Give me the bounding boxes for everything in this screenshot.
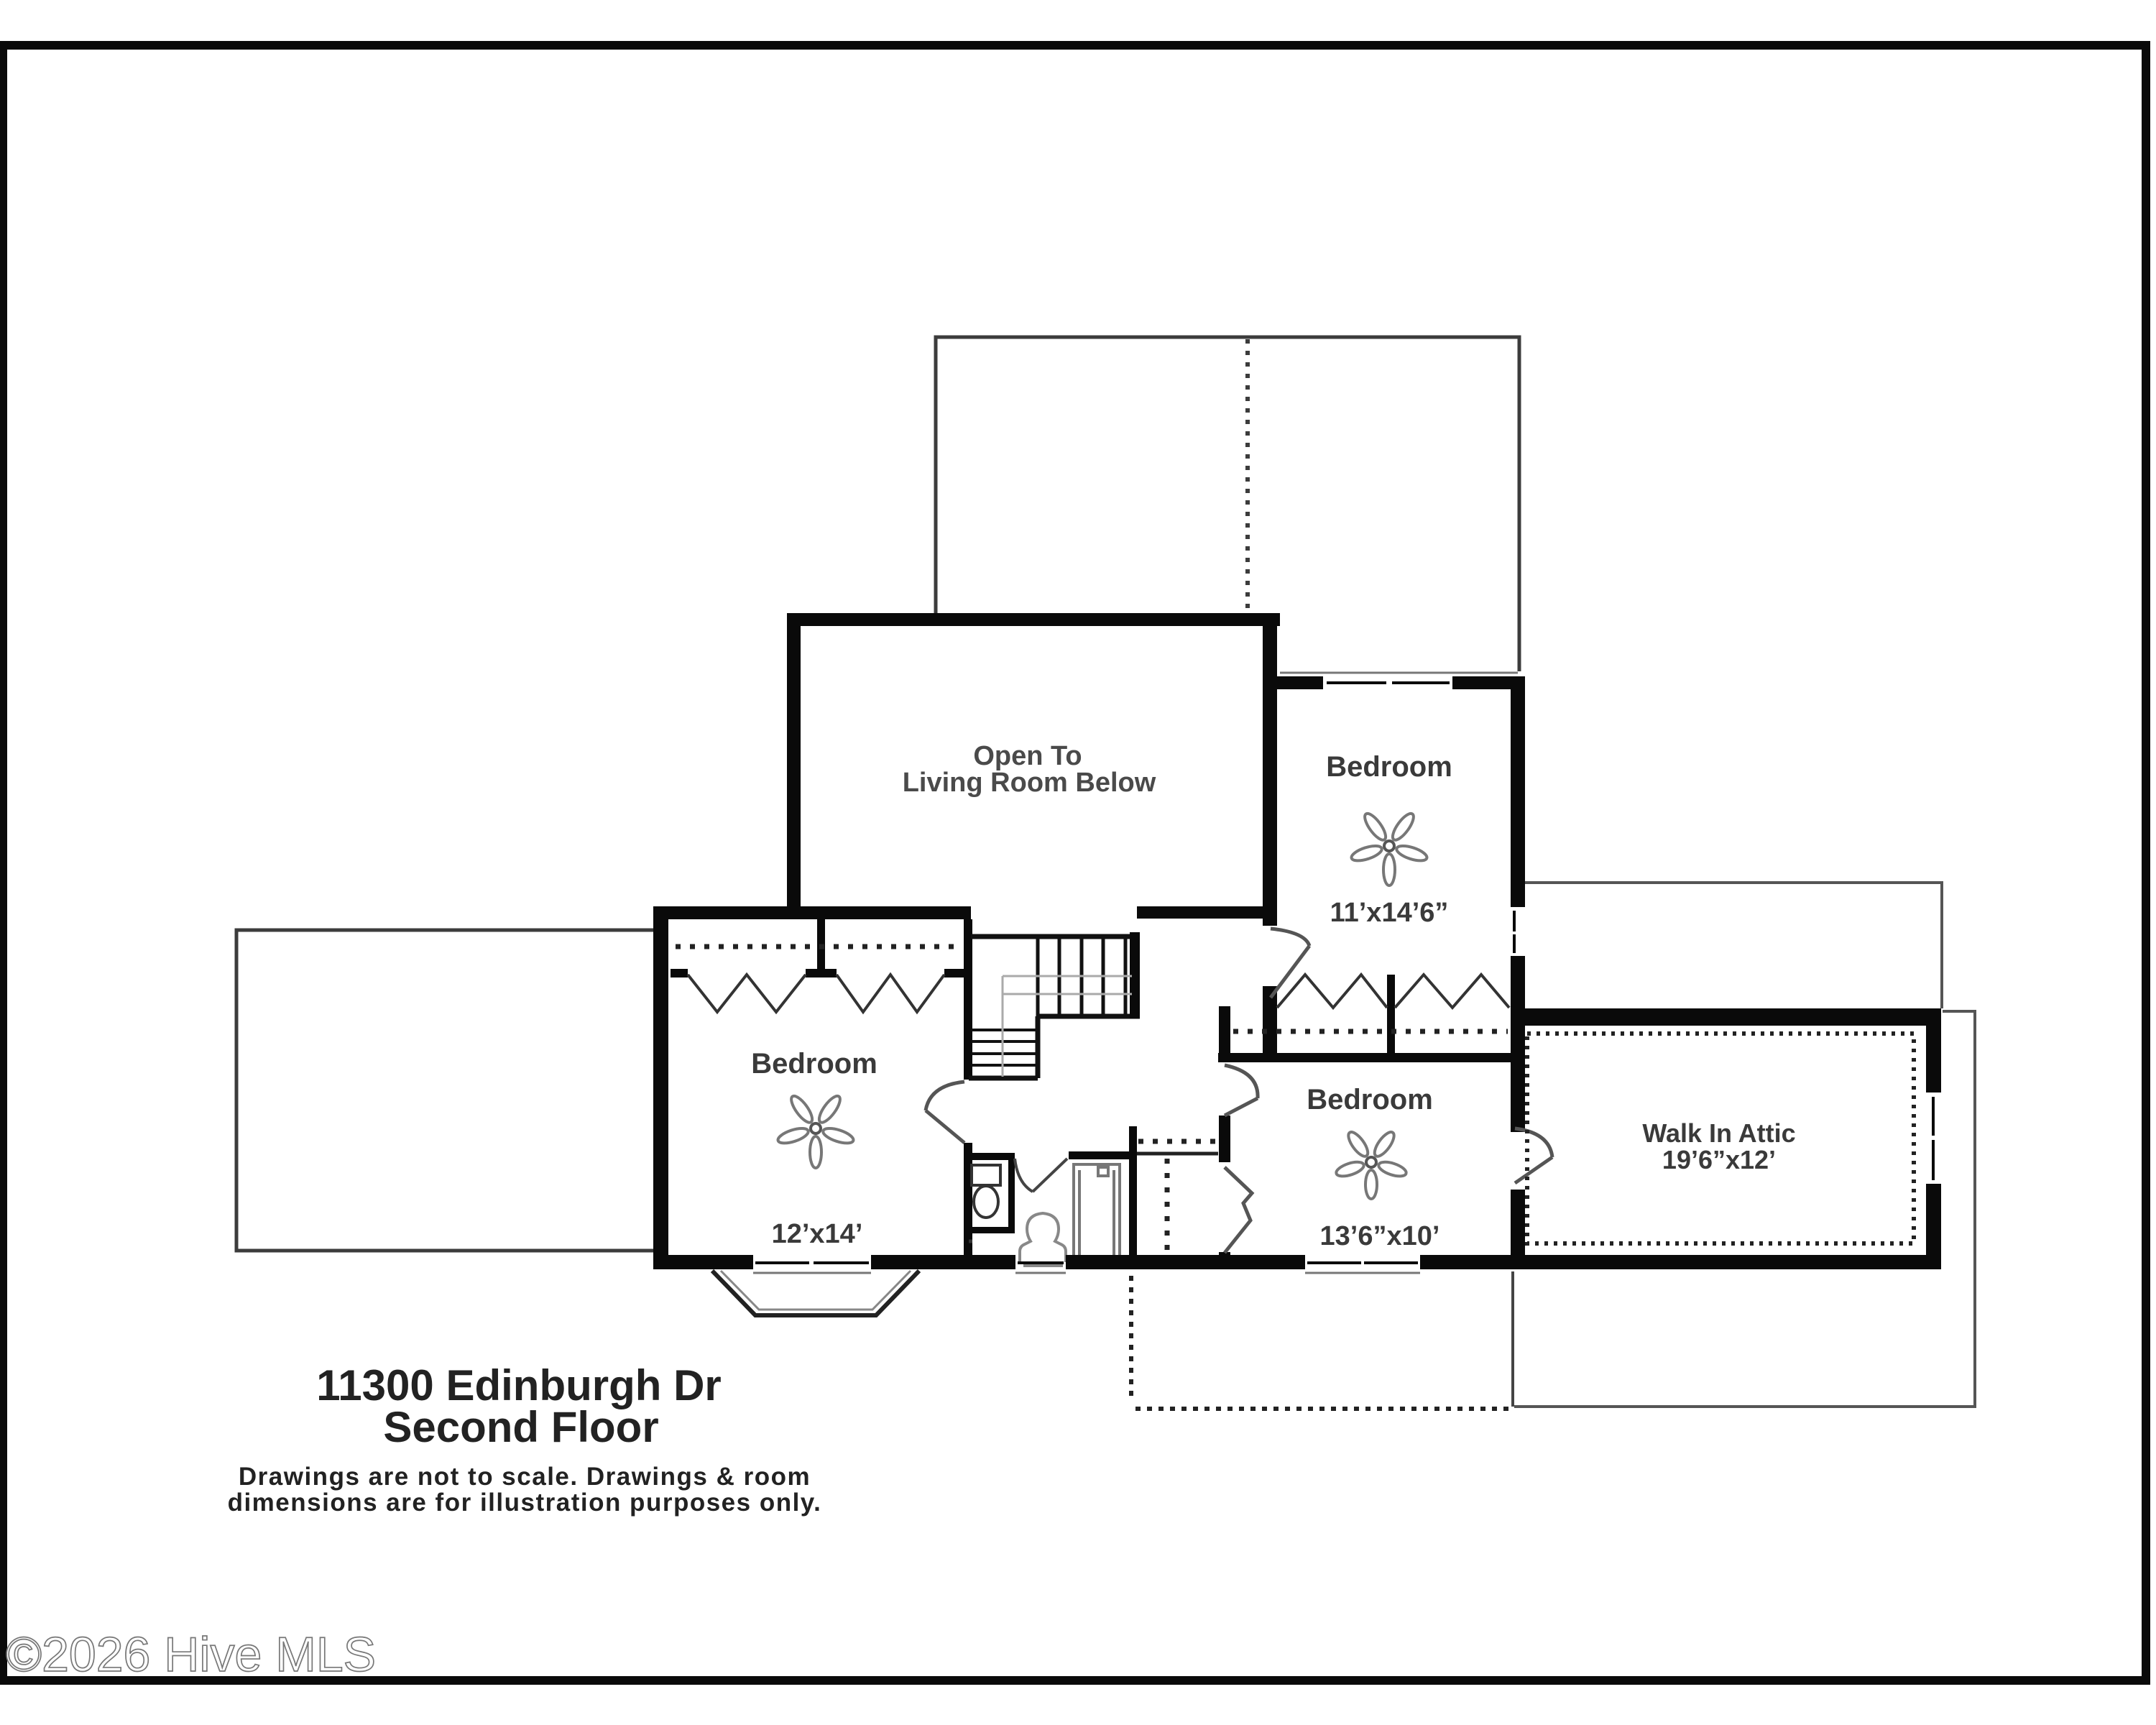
- svg-text:13’6”x10’: 13’6”x10’: [1320, 1221, 1440, 1251]
- svg-text:Drawings are not to scale. Dra: Drawings are not to scale. Drawings & ro…: [239, 1463, 811, 1491]
- svg-text:19’6”x12’: 19’6”x12’: [1662, 1145, 1776, 1174]
- svg-text:Living Room Below: Living Room Below: [903, 768, 1156, 798]
- svg-text:11’x14’6”: 11’x14’6”: [1330, 898, 1449, 928]
- svg-text:dimensions are for illustratio: dimensions are for illustration purposes…: [228, 1489, 822, 1517]
- svg-text:Bedroom: Bedroom: [1307, 1084, 1433, 1115]
- svg-text:Bedroom: Bedroom: [751, 1048, 877, 1080]
- svg-text:©2026 Hive MLS: ©2026 Hive MLS: [6, 1627, 376, 1682]
- svg-text:11300 Edinburgh Dr: 11300 Edinburgh Dr: [316, 1361, 722, 1409]
- svg-text:Walk In Attic: Walk In Attic: [1642, 1118, 1795, 1148]
- svg-text:Second Floor: Second Floor: [383, 1403, 658, 1451]
- svg-text:12’x14’: 12’x14’: [772, 1219, 863, 1249]
- svg-text:Bedroom: Bedroom: [1326, 751, 1452, 783]
- svg-text:Open To: Open To: [973, 741, 1082, 771]
